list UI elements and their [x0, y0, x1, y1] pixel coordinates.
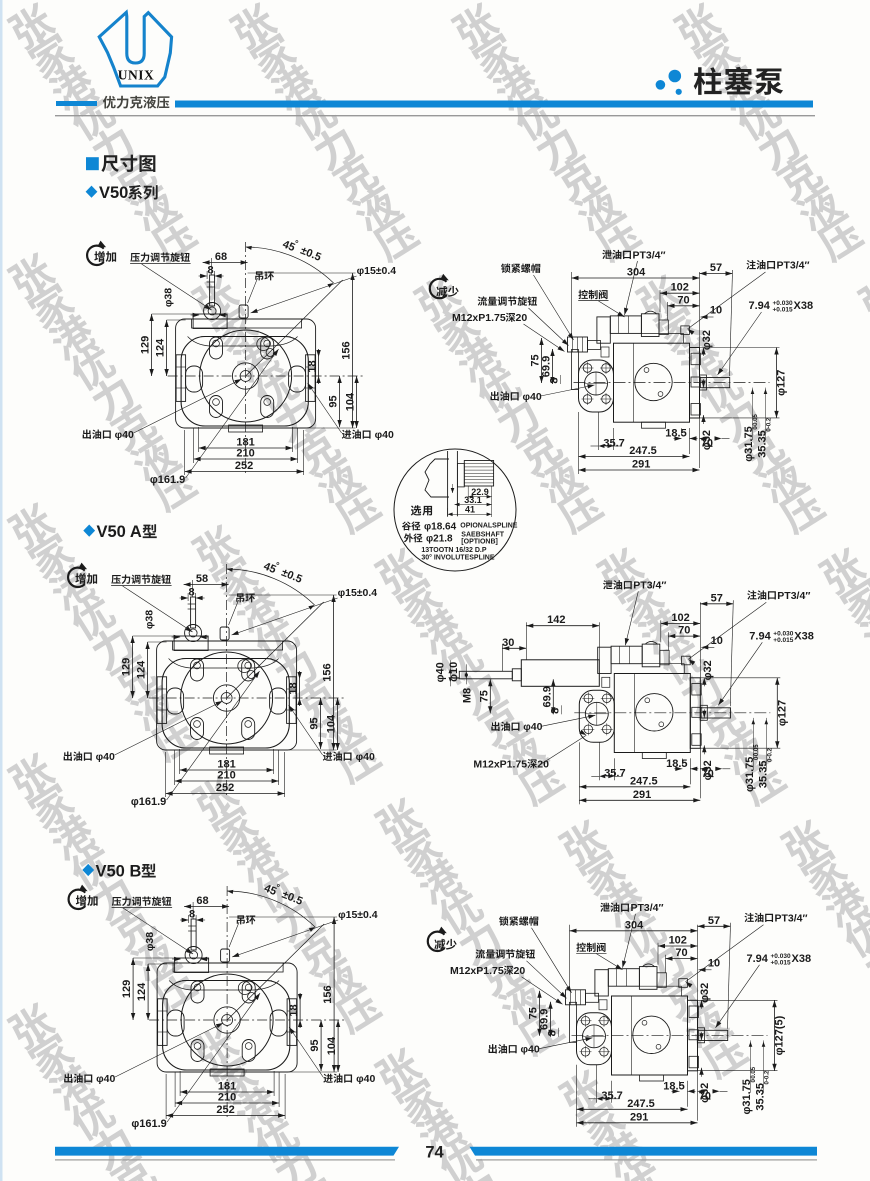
svg-text:69.9: 69.9: [539, 1009, 551, 1030]
svg-text:35.35: 35.35: [757, 430, 769, 458]
svg-text:8: 8: [549, 377, 561, 383]
svg-text:φ18.64: φ18.64: [424, 522, 457, 533]
svg-text:124: 124: [136, 982, 148, 1001]
svg-text:20: 20: [516, 312, 528, 324]
svg-text:129: 129: [140, 336, 152, 354]
svg-text:13TOOTN 16/32 D.P: 13TOOTN 16/32 D.P: [421, 547, 487, 554]
svg-text:68: 68: [215, 251, 227, 263]
svg-text:70: 70: [678, 625, 690, 637]
svg-text:V50: V50: [99, 184, 128, 202]
svg-text:35.7: 35.7: [601, 1090, 622, 1102]
svg-text:°: °: [274, 560, 281, 571]
svg-text:35.35: 35.35: [757, 761, 769, 789]
svg-text:68: 68: [196, 895, 208, 907]
svg-text:φ10: φ10: [448, 662, 460, 682]
svg-text:φ127(5): φ127(5): [774, 1015, 786, 1055]
svg-text:104: 104: [345, 392, 357, 411]
svg-text:φ38: φ38: [163, 288, 175, 307]
svg-text:φ127: φ127: [776, 700, 788, 726]
svg-text:156: 156: [322, 663, 334, 681]
svg-text:75: 75: [528, 1007, 540, 1019]
svg-text:247.5: 247.5: [627, 1098, 655, 1110]
svg-text:φ32: φ32: [699, 983, 711, 1003]
svg-text:57: 57: [711, 592, 723, 604]
svg-text:252: 252: [235, 460, 253, 472]
svg-text:156: 156: [341, 341, 353, 359]
svg-text:70: 70: [675, 947, 687, 959]
svg-text:φ40: φ40: [434, 662, 446, 682]
svg-text:210: 210: [217, 770, 235, 782]
svg-text:18: 18: [307, 360, 319, 372]
svg-text:φ161.9: φ161.9: [131, 796, 166, 808]
svg-text:7.94: 7.94: [749, 630, 771, 642]
svg-text:102: 102: [671, 282, 689, 294]
svg-text:10: 10: [711, 635, 723, 647]
svg-text:75: 75: [530, 354, 542, 366]
svg-text:φ15±0.4: φ15±0.4: [357, 265, 397, 277]
svg-text:124: 124: [155, 338, 167, 357]
svg-text:57: 57: [708, 915, 720, 927]
svg-text:φ32: φ32: [701, 330, 713, 350]
svg-text:8: 8: [549, 708, 561, 714]
svg-text:35.7: 35.7: [603, 437, 624, 449]
svg-text:φ38: φ38: [144, 932, 156, 951]
svg-text:8: 8: [547, 1030, 559, 1036]
svg-text:247.5: 247.5: [629, 445, 657, 457]
svg-text:-0.05: -0.05: [751, 1066, 757, 1080]
svg-text:252: 252: [216, 1104, 234, 1116]
svg-text:291: 291: [630, 1111, 648, 1123]
svg-text:+0.015: +0.015: [773, 307, 793, 314]
svg-text:OPIONALSPLINE: OPIONALSPLINE: [460, 523, 518, 530]
svg-text:129: 129: [121, 658, 133, 676]
svg-text:41: 41: [465, 505, 475, 515]
svg-text:124: 124: [136, 660, 148, 679]
svg-text:φ15±0.4: φ15±0.4: [338, 909, 378, 921]
svg-text:φ40: φ40: [521, 1044, 540, 1056]
svg-text:M8: M8: [461, 688, 473, 703]
svg-text:7.94: 7.94: [749, 300, 771, 312]
svg-text:75: 75: [478, 690, 490, 702]
svg-text:PT3/4″: PT3/4″: [777, 260, 810, 272]
svg-text:95: 95: [309, 717, 321, 729]
svg-text:102: 102: [669, 935, 687, 947]
svg-text:φ31.75: φ31.75: [741, 1079, 753, 1114]
svg-text:φ40: φ40: [115, 429, 134, 441]
svg-text:7.94: 7.94: [747, 953, 769, 965]
svg-text:30° INVOLUTESPLINE: 30° INVOLUTESPLINE: [421, 554, 495, 562]
svg-text:φ32: φ32: [699, 1083, 711, 1103]
svg-text:φ32: φ32: [701, 430, 713, 450]
svg-text:X38: X38: [792, 953, 812, 965]
svg-text:φ15±0.4: φ15±0.4: [338, 587, 378, 599]
svg-text:°: °: [293, 238, 300, 249]
svg-text:+0.015: +0.015: [771, 959, 791, 966]
svg-text:φ40: φ40: [96, 751, 115, 763]
svg-text:10: 10: [710, 305, 722, 317]
svg-text:X38: X38: [794, 300, 814, 312]
svg-text:φ40: φ40: [375, 429, 394, 441]
svg-text:φ127: φ127: [776, 370, 788, 396]
svg-text:-0.2: -0.2: [765, 1070, 771, 1081]
svg-text:95: 95: [328, 395, 340, 407]
svg-text:φ40: φ40: [96, 1073, 115, 1085]
svg-text:104: 104: [326, 714, 338, 733]
svg-text:UNIX: UNIX: [118, 68, 155, 83]
svg-text:PT3/4″: PT3/4″: [777, 590, 810, 602]
svg-text:PT3/4″: PT3/4″: [631, 902, 664, 914]
svg-text:φ40: φ40: [356, 751, 375, 763]
svg-text:M12xP1.75: M12xP1.75: [450, 965, 504, 977]
svg-text:φ40: φ40: [356, 1073, 375, 1085]
svg-text:57: 57: [710, 262, 722, 274]
svg-text:252: 252: [216, 782, 234, 794]
svg-text:M12xP1.75: M12xP1.75: [452, 312, 506, 324]
svg-text:69.9: 69.9: [541, 686, 553, 707]
svg-text:304: 304: [627, 267, 646, 279]
svg-text:φ31.75: φ31.75: [743, 426, 755, 461]
svg-text:-0.05: -0.05: [754, 744, 760, 758]
svg-text:V50 B: V50 B: [96, 862, 142, 880]
svg-text:+0.015: +0.015: [773, 637, 793, 644]
svg-text:20: 20: [514, 965, 526, 977]
svg-text:142: 142: [547, 614, 565, 626]
svg-text:M12xP1.75: M12xP1.75: [473, 758, 527, 770]
svg-text:φ161.9: φ161.9: [131, 1118, 166, 1130]
svg-text:φ32: φ32: [702, 660, 714, 680]
svg-text:-0.05: -0.05: [753, 414, 759, 428]
svg-text:-0.2: -0.2: [767, 417, 773, 428]
svg-text:35.35: 35.35: [755, 1083, 767, 1111]
svg-text:247.5: 247.5: [630, 775, 658, 787]
svg-text:φ38: φ38: [144, 610, 156, 629]
svg-text:35.7: 35.7: [604, 768, 625, 780]
svg-text:69.9: 69.9: [541, 356, 553, 377]
svg-text:18: 18: [288, 682, 300, 694]
svg-text:φ40: φ40: [523, 721, 542, 733]
svg-text:95: 95: [309, 1039, 321, 1051]
svg-text:58: 58: [196, 573, 208, 585]
svg-text:8: 8: [189, 587, 195, 599]
svg-text:[OPTIONB]: [OPTIONB]: [461, 539, 498, 546]
svg-text:PT3/4″: PT3/4″: [633, 580, 666, 592]
svg-text:10: 10: [708, 957, 720, 969]
svg-text:291: 291: [633, 789, 651, 801]
svg-text:33.1: 33.1: [464, 495, 482, 505]
svg-text:PT3/4″: PT3/4″: [633, 249, 666, 261]
svg-text:8: 8: [189, 909, 195, 921]
svg-text:104: 104: [326, 1036, 338, 1055]
svg-text:φ32: φ32: [702, 760, 714, 780]
svg-text:V50 A: V50 A: [97, 523, 142, 541]
svg-text:φ31.75: φ31.75: [744, 757, 756, 792]
svg-text:70: 70: [677, 294, 689, 306]
svg-text:18: 18: [288, 1004, 300, 1016]
svg-text:-0.2: -0.2: [767, 747, 773, 758]
svg-text:SAEBSHAFT: SAEBSHAFT: [461, 532, 505, 539]
svg-text:156: 156: [322, 985, 334, 1003]
svg-text:φ40: φ40: [523, 391, 542, 403]
svg-text:210: 210: [218, 1092, 236, 1104]
svg-text:102: 102: [671, 612, 689, 624]
svg-text:φ21.8: φ21.8: [426, 534, 453, 545]
svg-text:129: 129: [121, 980, 133, 998]
svg-text:74: 74: [425, 1143, 444, 1161]
svg-text:210: 210: [236, 448, 254, 460]
svg-text:8: 8: [208, 265, 214, 277]
svg-text:30: 30: [502, 637, 514, 649]
svg-text:PT3/4″: PT3/4″: [775, 912, 808, 924]
svg-text:φ161.9: φ161.9: [150, 474, 185, 486]
svg-text:291: 291: [632, 459, 650, 471]
svg-text:X38: X38: [794, 630, 814, 642]
svg-text:304: 304: [625, 919, 644, 931]
